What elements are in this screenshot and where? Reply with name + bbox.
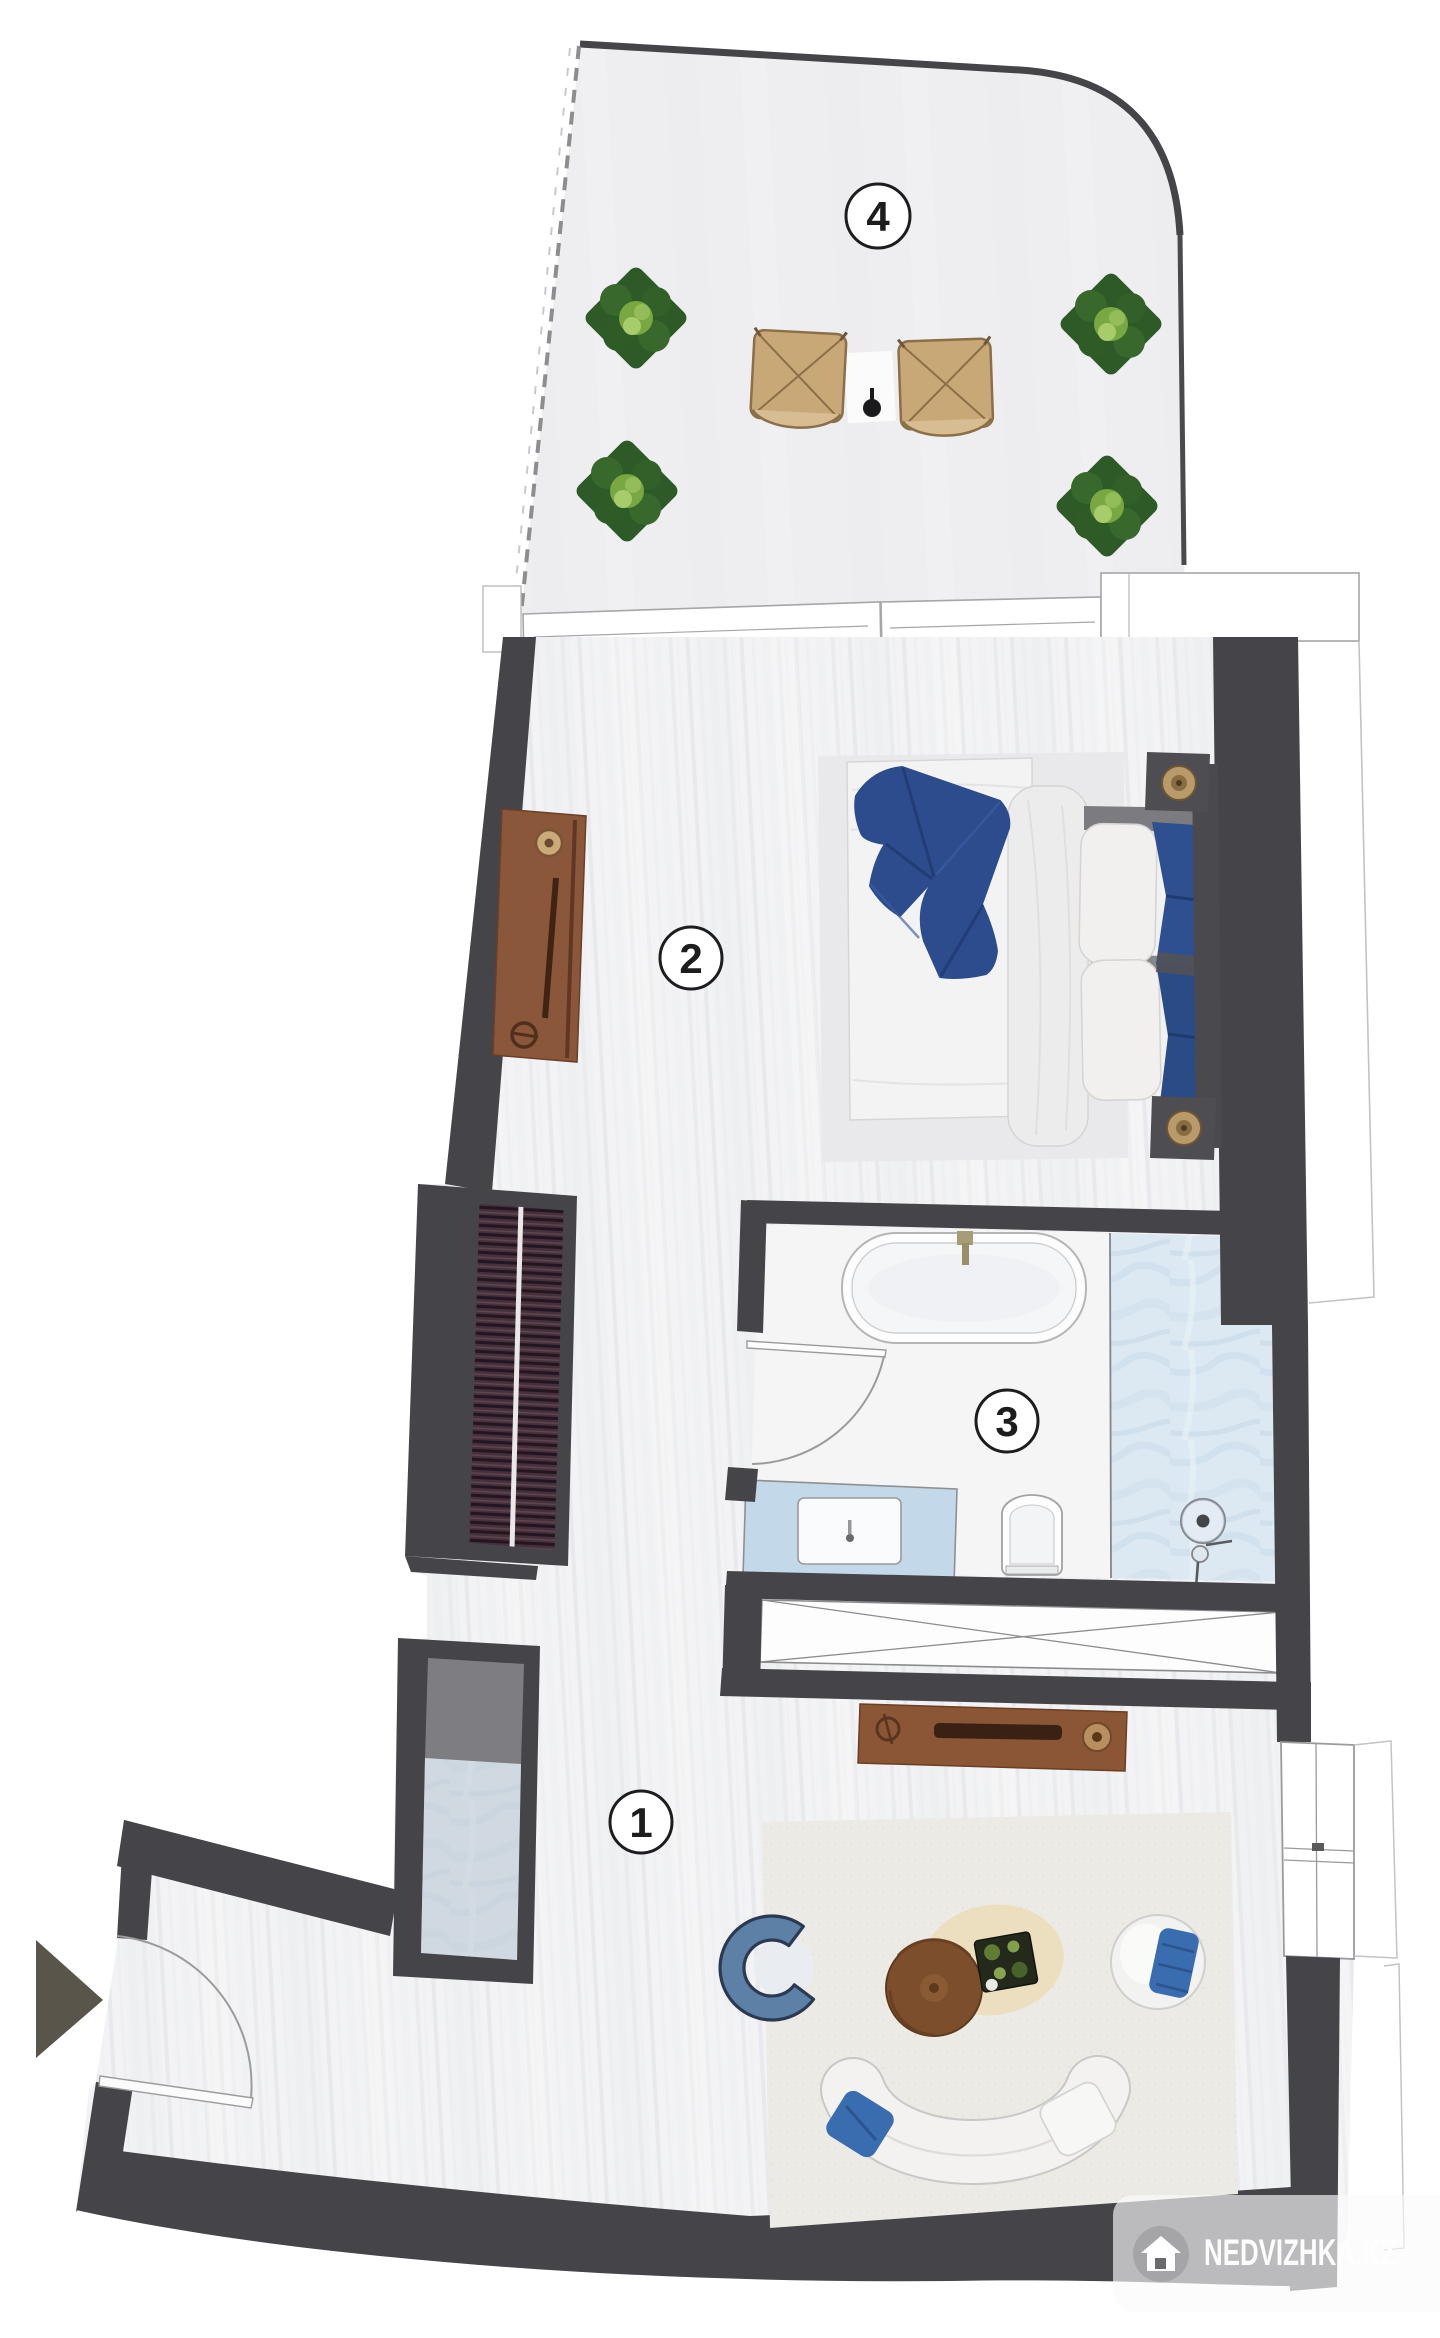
svg-text:3: 3 <box>995 1398 1018 1445</box>
svg-text:NEDVIZHKA.KZ: NEDVIZHKA.KZ <box>1204 2231 1397 2273</box>
svg-text:2: 2 <box>679 935 702 982</box>
svg-text:4: 4 <box>866 193 890 240</box>
svg-text:1: 1 <box>629 1799 652 1846</box>
